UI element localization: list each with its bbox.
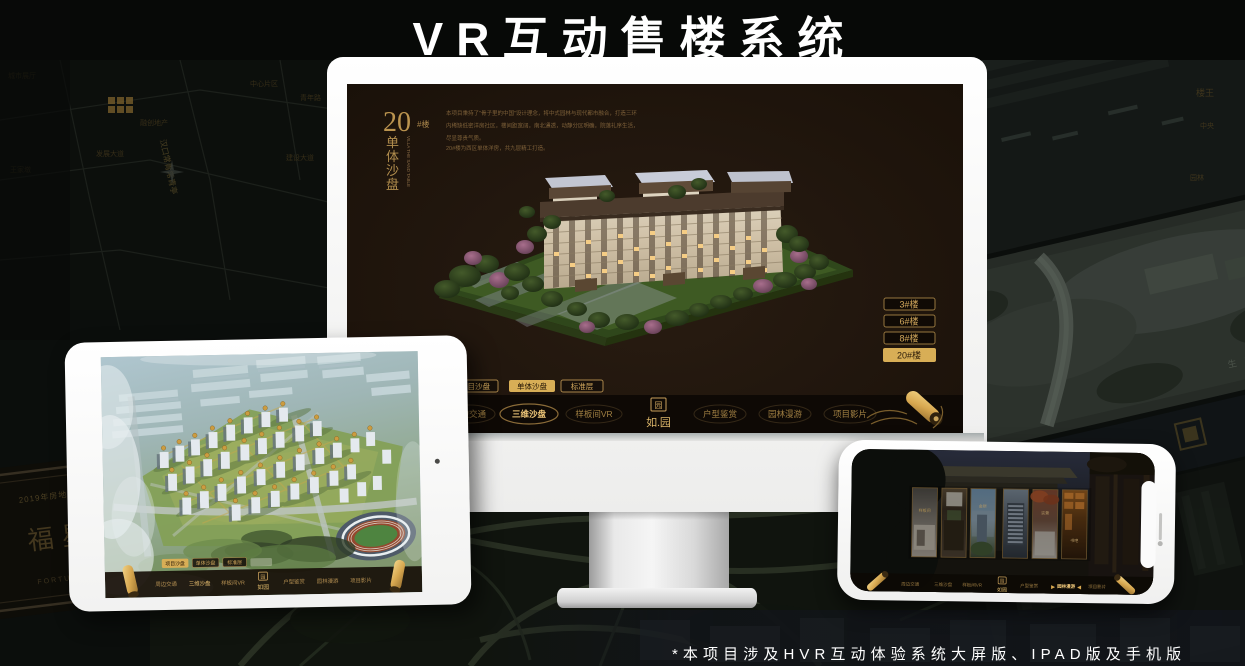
svg-text:沙: 沙 bbox=[386, 163, 399, 178]
svg-text:20#楼为西区单体洋房，共九层精工打造。: 20#楼为西区单体洋房，共九层精工打造。 bbox=[446, 144, 549, 152]
svg-text:如.园: 如.园 bbox=[646, 415, 671, 429]
svg-text:样板间VR: 样板间VR bbox=[575, 409, 612, 419]
svg-text:20#楼: 20#楼 bbox=[897, 350, 921, 361]
svg-text:如园: 如园 bbox=[257, 583, 269, 591]
svg-text:标准层: 标准层 bbox=[571, 381, 594, 391]
svg-text:项目影片: 项目影片 bbox=[833, 409, 867, 419]
svg-text:如园: 如园 bbox=[997, 586, 1007, 593]
svg-text:3#楼: 3#楼 bbox=[899, 299, 918, 310]
svg-text:盘: 盘 bbox=[386, 177, 399, 192]
svg-text:中心片区: 中心片区 bbox=[250, 79, 278, 88]
svg-text:本项目秉持了"骨子里的中国"设计理念，将中式园林与现代都市融: 本项目秉持了"骨子里的中国"设计理念，将中式园林与现代都市融合，打造三环 bbox=[446, 109, 637, 117]
svg-text:单体沙盘: 单体沙盘 bbox=[517, 381, 547, 391]
svg-text:户型鉴赏: 户型鉴赏 bbox=[703, 409, 737, 419]
svg-text:园林: 园林 bbox=[1190, 173, 1204, 182]
svg-text:发展大道: 发展大道 bbox=[96, 149, 124, 158]
svg-text:20: 20 bbox=[383, 107, 411, 138]
svg-text:VILLA THE SAND TABLE: VILLA THE SAND TABLE bbox=[406, 136, 411, 187]
svg-text:中央: 中央 bbox=[1200, 121, 1214, 130]
svg-text:青年路: 青年路 bbox=[300, 93, 321, 102]
svg-text:园林漫游: 园林漫游 bbox=[768, 409, 803, 419]
svg-text:内稀缺低密洋房社区，楼间距宽阔，南北通透，动静分区明确，院落: 内稀缺低密洋房社区，楼间距宽阔，南北通透，动静分区明确，院落礼序生活， bbox=[446, 122, 639, 130]
svg-text:8#楼: 8#楼 bbox=[899, 333, 918, 344]
svg-text:体: 体 bbox=[386, 149, 399, 164]
svg-text:单: 单 bbox=[386, 135, 399, 150]
svg-text:园: 园 bbox=[260, 575, 265, 581]
svg-text:园: 园 bbox=[655, 401, 663, 410]
svg-text:融创地产: 融创地产 bbox=[140, 118, 168, 127]
svg-text:6#楼: 6#楼 bbox=[899, 316, 918, 327]
svg-text:#楼: #楼 bbox=[417, 119, 429, 129]
svg-text:尽显尊贵气质。: 尽显尊贵气质。 bbox=[446, 134, 485, 142]
svg-text:楼王: 楼王 bbox=[1196, 87, 1214, 98]
svg-text:三维沙盘: 三维沙盘 bbox=[512, 409, 547, 419]
svg-text:建设大道: 建设大道 bbox=[286, 153, 314, 162]
